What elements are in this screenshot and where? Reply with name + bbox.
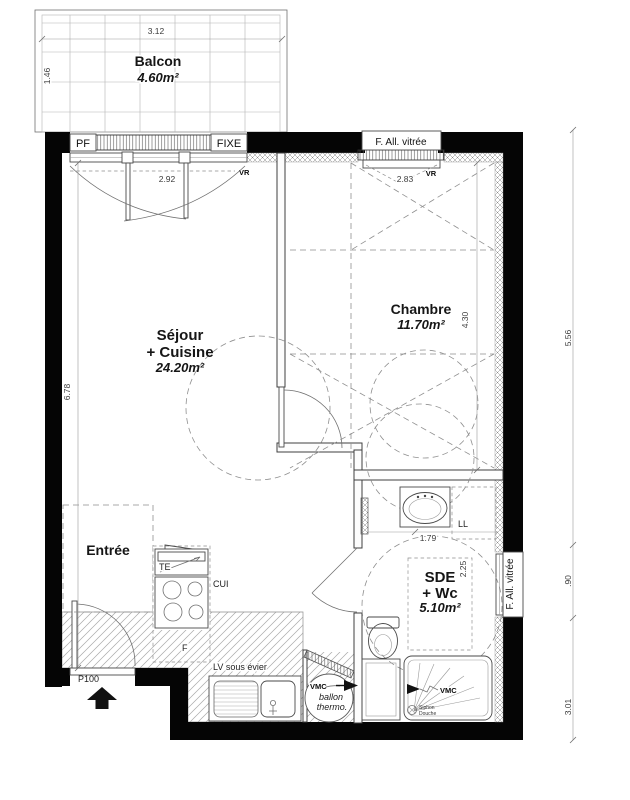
chambre-clearance-circle <box>370 350 478 458</box>
window-sill <box>363 160 440 168</box>
te-label: TE <box>159 562 171 572</box>
fixe-label: FIXE <box>217 138 241 150</box>
ballon-label-1: ballon <box>319 692 343 702</box>
lv-label: LV sous évier <box>213 662 267 672</box>
balcony-depth-dim: 1.46 <box>42 67 52 84</box>
wall-nook-partition <box>303 650 307 722</box>
balcony-label: Balcon <box>135 53 182 69</box>
ll-label: LL <box>458 519 468 529</box>
cui-label: CUI <box>213 579 229 589</box>
wall-sejour-chambre <box>277 153 285 387</box>
wall-bottom-left-corner <box>45 668 70 686</box>
door-leaf <box>184 163 188 218</box>
sink-drainboard <box>214 681 258 717</box>
fridge-label: F <box>182 643 188 653</box>
sde-label-1: SDE <box>425 569 456 586</box>
f-all-vitree-right-label: F. All. vitrée <box>505 558 516 610</box>
radiator <box>361 498 368 534</box>
chambre-area: 11.70m² <box>397 317 445 332</box>
balcony-area: 4.60m² <box>136 70 179 85</box>
wall-top-middle <box>247 132 365 153</box>
right-dim-mid: .90 <box>563 575 573 587</box>
entry-arrow-icon <box>87 687 117 709</box>
door-leaf <box>312 548 357 593</box>
sejour-area: 24.20m² <box>155 360 205 375</box>
chambre-door <box>279 387 342 448</box>
interior-walls <box>277 153 503 723</box>
toilet <box>367 617 399 659</box>
wall-right-upper <box>503 132 523 552</box>
chambre-window: F. All. vitrée VR 2.83 <box>358 131 444 184</box>
sde-width-dim: 1.79 <box>420 533 437 543</box>
right-dim-bottom: 3.01 <box>563 698 573 715</box>
chambre-window-dim: 2.83 <box>397 174 414 184</box>
sejour-label-2: + Cuisine <box>146 344 213 361</box>
wall-left <box>45 132 62 687</box>
chambre-label: Chambre <box>391 301 452 317</box>
right-dim-top: 5.56 <box>563 329 573 346</box>
sejour-dashed-guides <box>186 336 474 512</box>
toilet-cistern <box>367 617 399 628</box>
cabinet-below-toilet <box>362 659 400 720</box>
sde-area: 5.10m² <box>419 600 461 615</box>
balcony-width-dim: 3.12 <box>148 26 165 36</box>
toilet-bowl <box>369 624 398 659</box>
wall-sejour-corner <box>277 443 362 452</box>
washbasin: LL 1.79 2.25 <box>361 487 498 577</box>
ballon-label-2: thermo. <box>317 702 348 712</box>
vr-chambre-label: VR <box>426 169 437 178</box>
balcony: 3.12 1.46 Balcon 4.60m² <box>35 10 287 132</box>
door-swing-arc <box>284 390 342 448</box>
wall-bottom <box>170 722 523 740</box>
entry-door-label: P100 <box>78 674 99 684</box>
balcony-french-door <box>70 163 245 221</box>
door-leaf <box>126 163 130 220</box>
sejour-label-1: Séjour <box>157 327 204 344</box>
washbasin-counter <box>400 487 450 527</box>
washer-zone <box>452 487 496 539</box>
wall-sejour-sde-lower <box>354 613 362 723</box>
cabinet-outline <box>362 659 400 720</box>
entree-zone <box>63 505 153 612</box>
floor-plan-drawing: 3.12 1.46 Balcon 4.60m² PF FIXE <box>0 0 630 800</box>
sejour-window-dim: 2.92 <box>159 174 176 184</box>
siphon-label-2: Douche <box>419 711 436 717</box>
room-labels: Séjour + Cuisine 24.20m² Chambre 11.70m²… <box>86 301 461 615</box>
entree-dashed-rect <box>63 505 153 612</box>
window-glazing-band <box>358 150 444 160</box>
sde-depth-dim: 2.25 <box>458 560 468 577</box>
door-swing-arc <box>312 593 357 612</box>
sde-window: F. All. vitrée <box>496 552 523 617</box>
entree-label: Entrée <box>86 542 130 558</box>
vmc-shower-label: VMC <box>440 686 457 695</box>
f-all-vitree-top-label: F. All. vitrée <box>375 137 427 148</box>
wall-right-lower <box>503 617 523 740</box>
shower: Siphon Douche VMC <box>404 656 492 720</box>
floor-plan-page: 3.12 1.46 Balcon 4.60m² PF FIXE <box>0 0 630 800</box>
wall-chambre-sde <box>354 470 503 480</box>
pf-label: PF <box>76 138 90 150</box>
vmc-ballon-label: VMC <box>310 682 327 691</box>
sde-door <box>312 548 357 612</box>
chambre-height-dim: 4.30 <box>460 311 470 328</box>
sejour-height-dim: 6.78 <box>62 383 72 400</box>
sejour-window: PF FIXE VR 2.92 <box>70 134 250 184</box>
door-leaf <box>279 387 284 447</box>
door-leaf <box>72 601 77 668</box>
vr-sejour-label: VR <box>239 168 250 177</box>
